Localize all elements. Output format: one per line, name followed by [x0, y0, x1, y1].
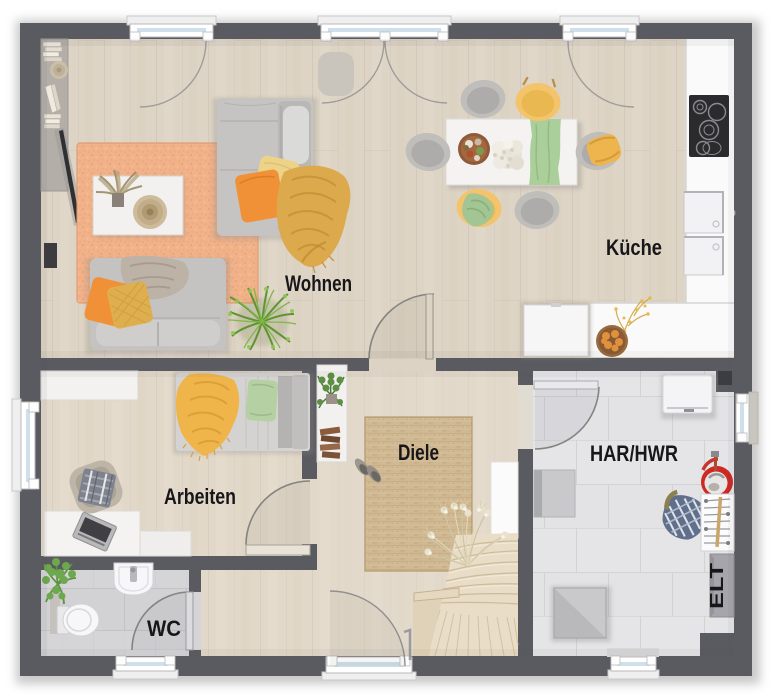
svg-text:ELT: ELT	[707, 563, 727, 609]
svg-text:Arbeiten: Arbeiten	[164, 484, 236, 509]
svg-text:WC: WC	[147, 616, 181, 641]
svg-text:Wohnen: Wohnen	[285, 271, 352, 296]
svg-text:HAR/HWR: HAR/HWR	[590, 441, 678, 466]
svg-text:Diele: Diele	[398, 440, 439, 465]
svg-text:Küche: Küche	[606, 235, 662, 260]
